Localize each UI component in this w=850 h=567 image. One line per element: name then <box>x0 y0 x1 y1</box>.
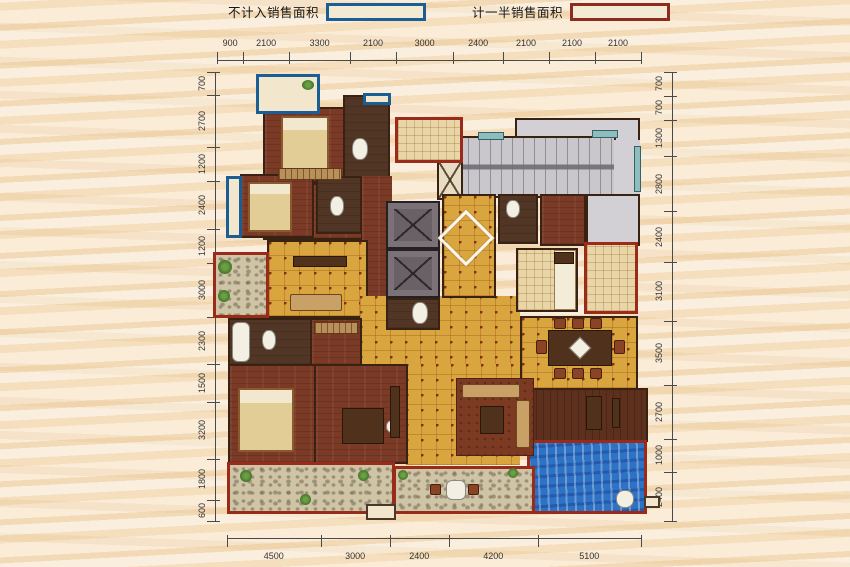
tub-master <box>232 322 250 362</box>
chair <box>590 318 602 329</box>
chair <box>590 368 602 379</box>
bed-west <box>248 182 292 232</box>
terrace-chair <box>430 484 441 495</box>
storage-room <box>540 194 586 246</box>
chair <box>614 340 625 354</box>
plant <box>240 470 252 482</box>
coffee-table <box>480 406 504 434</box>
plant <box>218 290 230 302</box>
plant <box>302 80 314 90</box>
landing-room-right <box>586 194 640 246</box>
family-table <box>293 256 347 267</box>
stove <box>554 252 574 264</box>
closet-wardrobe <box>314 322 358 334</box>
toilet-entry <box>412 302 428 324</box>
shower-head <box>612 398 620 428</box>
shower-column <box>586 396 602 430</box>
bath-north <box>343 95 390 181</box>
chair <box>572 368 584 379</box>
toilet-north <box>352 138 368 160</box>
bed-north <box>281 116 329 174</box>
sofa-main <box>462 384 520 398</box>
window-north <box>363 93 391 105</box>
window-east <box>634 146 641 192</box>
toilet-master <box>262 330 276 350</box>
elevator-2 <box>386 249 440 298</box>
plant <box>508 468 518 478</box>
stairwell <box>444 136 616 198</box>
sofa-side <box>516 400 530 448</box>
equip-room-north <box>395 117 463 163</box>
window-stair-top-2 <box>592 130 618 138</box>
living-room <box>360 296 520 366</box>
service-balcony-east <box>584 242 638 314</box>
entry-steps <box>366 504 396 520</box>
tv-cabinet <box>390 386 400 438</box>
plant <box>398 470 408 480</box>
family-sofa <box>290 294 342 311</box>
master-bed <box>238 388 294 452</box>
desk <box>342 408 384 444</box>
plant <box>300 494 311 505</box>
floor-plan <box>0 0 850 567</box>
dresser-north <box>278 168 342 180</box>
toilet-east <box>506 200 520 218</box>
pool-ladder <box>616 490 634 508</box>
window-stair-top <box>478 132 504 140</box>
terrace-table <box>446 480 466 500</box>
chair <box>554 368 566 379</box>
chair <box>554 318 566 329</box>
terrace-chair <box>468 484 479 495</box>
chair <box>536 340 547 354</box>
toilet-west <box>330 196 344 216</box>
plant <box>358 470 369 481</box>
side-step <box>644 496 660 508</box>
window-balcony-west <box>226 176 242 238</box>
elevator-1 <box>386 201 440 249</box>
floor-plan-page: 不计入销售面积 计一半销售面积 900210033002100300024002… <box>0 0 850 567</box>
chair <box>572 318 584 329</box>
plant <box>218 260 232 274</box>
